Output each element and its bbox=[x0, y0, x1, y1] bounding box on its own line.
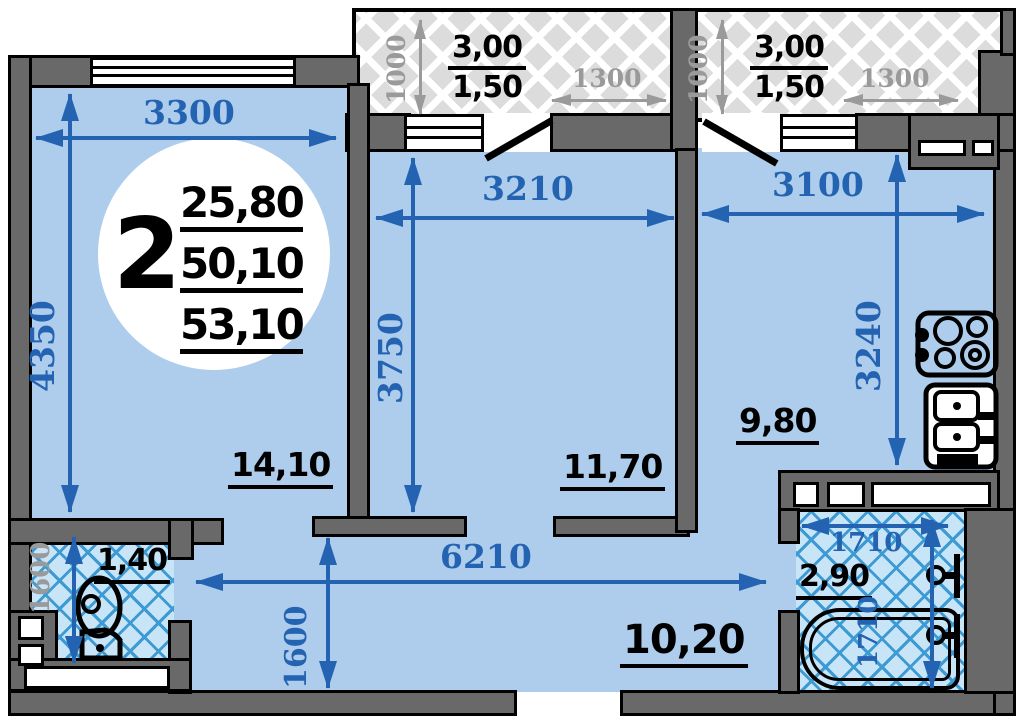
bathroom-vent-slot-1 bbox=[793, 482, 819, 507]
balcony-left-area-full: 3,00 bbox=[448, 33, 526, 70]
balcony-left-depth-arrow bbox=[419, 20, 422, 114]
bedroom-kitchen-wall bbox=[675, 148, 698, 533]
bedroom-width-dim: 3210 bbox=[482, 172, 574, 205]
bedroom-balcony-door-opening bbox=[484, 113, 550, 152]
wc-vent-slot-1 bbox=[18, 616, 44, 640]
bedroom-area-label: 11,70 bbox=[560, 450, 665, 491]
living-room-window bbox=[90, 57, 296, 87]
unit-area-2: 50,10 bbox=[180, 243, 303, 293]
kitchen-width-dim: 3100 bbox=[772, 168, 864, 201]
balcony-right-area-full: 3,00 bbox=[750, 33, 828, 70]
kitchen-vent-slot-1 bbox=[918, 140, 966, 156]
kitchen-depth-dim: 3240 bbox=[852, 272, 885, 392]
bathroom-vent-slot-3 bbox=[871, 482, 991, 507]
living-width-arrow bbox=[36, 136, 336, 140]
wc-area-label: 1,40 bbox=[94, 546, 170, 584]
wc-door-post-wall bbox=[168, 518, 194, 560]
outer-wall-bottom-left bbox=[8, 690, 517, 716]
floor-plan: 2 25,80 50,10 53,10 3300 4350 14,10 3210… bbox=[0, 0, 1024, 718]
kitchen-window bbox=[780, 114, 858, 152]
wc-depth-dim: 1600 bbox=[28, 538, 54, 614]
balcony-right-corner-wall bbox=[1000, 8, 1016, 56]
unit-area-3: 53,10 bbox=[180, 304, 303, 354]
hallway-width-dim: 6210 bbox=[440, 540, 532, 573]
living-bedroom-wall bbox=[347, 83, 370, 520]
balcony-right-width-dim: 1300 bbox=[860, 66, 930, 91]
bathroom-depth-arrow bbox=[930, 520, 934, 688]
bedroom-width-arrow bbox=[376, 216, 674, 220]
hallway-depth-dim: 1600 bbox=[282, 594, 312, 689]
bathroom-right-wall bbox=[964, 508, 1016, 694]
balcony-left-area-label: 3,00 1,50 bbox=[448, 33, 526, 103]
balcony-left-depth-dim: 1000 bbox=[384, 40, 409, 104]
wc-bottom-niche bbox=[24, 666, 170, 689]
kitchen-area-label: 9,80 bbox=[736, 404, 819, 445]
bedroom-depth-dim: 3750 bbox=[374, 284, 407, 404]
bathroom-depth-dim: 1710 bbox=[856, 576, 882, 668]
hallway-depth-arrow bbox=[326, 538, 330, 688]
wall-under-balcony-left-b bbox=[550, 113, 678, 152]
kitchen-vent-slot-2 bbox=[972, 140, 994, 156]
living-area-label: 14,10 bbox=[228, 448, 333, 489]
balcony-right-width-arrow bbox=[844, 99, 958, 102]
bedroom-hall-stub-wall bbox=[553, 516, 690, 537]
living-depth-dim: 4350 bbox=[26, 272, 59, 392]
bedroom-depth-arrow bbox=[411, 158, 415, 512]
balcony-right-depth-arrow bbox=[721, 20, 724, 114]
hallway-width-arrow bbox=[196, 580, 766, 584]
balcony-left-area-half: 1,50 bbox=[448, 70, 526, 103]
sink-icon bbox=[923, 382, 999, 470]
living-depth-arrow bbox=[68, 94, 72, 512]
bathroom-vent-slot-2 bbox=[827, 482, 865, 507]
balcony-right-step-wall bbox=[978, 50, 1016, 122]
unit-areas-block: 25,80 50,10 53,10 bbox=[180, 182, 320, 365]
kitchen-depth-arrow bbox=[895, 155, 899, 465]
hallway-area-label: 10,20 bbox=[620, 620, 748, 668]
stove-icon bbox=[915, 310, 999, 378]
balcony-left-width-arrow bbox=[552, 99, 666, 102]
living-width-dim: 3300 bbox=[143, 96, 235, 129]
balcony-right-depth-dim: 1000 bbox=[686, 40, 711, 104]
balcony-right-area-half: 1,50 bbox=[750, 70, 828, 103]
room-count-label: 2 bbox=[113, 206, 181, 304]
living-hall-stub-wall bbox=[312, 516, 467, 537]
wc-vent-slot-2 bbox=[18, 644, 44, 666]
bathroom-left-wall-upper bbox=[778, 508, 800, 544]
wc-depth-arrow bbox=[72, 537, 76, 663]
unit-area-1: 25,80 bbox=[180, 182, 303, 232]
kitchen-width-arrow bbox=[702, 212, 984, 216]
balcony-left-width-dim: 1300 bbox=[572, 66, 642, 91]
bathroom-width-dim: 1710 bbox=[830, 530, 902, 556]
bedroom-balcony-window bbox=[404, 114, 484, 152]
bathroom-left-wall-lower bbox=[778, 610, 800, 694]
outer-wall-bottom-right bbox=[620, 690, 1016, 716]
balcony-right-area-label: 3,00 1,50 bbox=[750, 33, 828, 103]
